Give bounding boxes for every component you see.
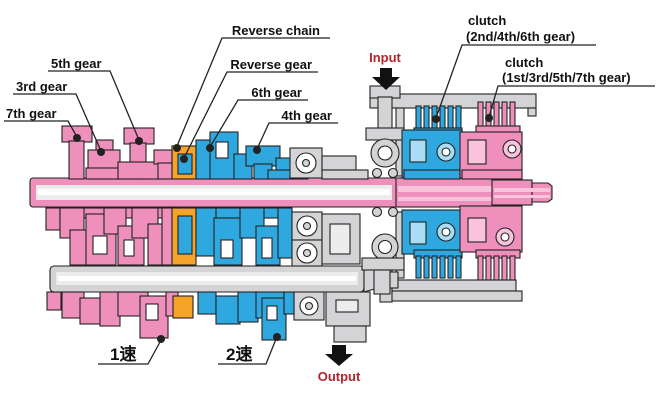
blue-gears-middle bbox=[196, 208, 292, 265]
transmission-drawing: 5th gear 3rd gear 7th gear Reverse chain… bbox=[0, 0, 658, 401]
gear6-label: 6th gear bbox=[251, 85, 302, 100]
gear4-dot bbox=[253, 146, 261, 154]
gear7-label: 7th gear bbox=[6, 106, 57, 121]
pink-gears-bottom bbox=[47, 292, 178, 338]
reverse-gear-label: Reverse gear bbox=[230, 57, 312, 72]
speed1-dot bbox=[157, 335, 165, 343]
reverse-chain-label: Reverse chain bbox=[232, 23, 320, 38]
clutch-odd-label-line2: (1st/3rd/5th/7th gear) bbox=[502, 70, 631, 85]
clutch-odd-dot bbox=[485, 114, 493, 122]
speed1-label: 1速 bbox=[110, 344, 136, 364]
pink-gears-top bbox=[62, 126, 172, 179]
input-label: Input bbox=[369, 50, 401, 65]
clutch-odd-label-line1: clutch bbox=[505, 55, 543, 70]
gear5-label: 5th gear bbox=[51, 56, 102, 71]
gear5-dot bbox=[135, 137, 143, 145]
pink-gears-middle bbox=[46, 208, 178, 265]
output-arrow-icon bbox=[325, 345, 353, 366]
transmission-diagram: 5th gear 3rd gear 7th gear Reverse chain… bbox=[0, 0, 658, 401]
reverse-gear-dot bbox=[180, 155, 188, 163]
gear7-dot bbox=[73, 134, 81, 142]
output-gear bbox=[294, 292, 370, 342]
output-label: Output bbox=[318, 369, 361, 384]
speed2-label: 2速 bbox=[226, 344, 252, 364]
clutch-even-label-line1: clutch bbox=[468, 13, 506, 28]
reverse-chain-dot bbox=[173, 144, 181, 152]
gear3-label: 3rd gear bbox=[16, 79, 67, 94]
gear4-label: 4th gear bbox=[281, 108, 332, 123]
clutch-even-dot bbox=[432, 115, 440, 123]
gear6-dot bbox=[206, 144, 214, 152]
gear3-dot bbox=[97, 148, 105, 156]
blue-gears-bottom bbox=[198, 292, 294, 340]
gear4-leader-line bbox=[257, 123, 338, 149]
speed2-dot bbox=[273, 333, 281, 341]
clutch-even-label-line2: (2nd/4th/6th gear) bbox=[466, 29, 575, 44]
counter-shaft bbox=[50, 266, 398, 292]
main-shaft bbox=[30, 178, 398, 207]
